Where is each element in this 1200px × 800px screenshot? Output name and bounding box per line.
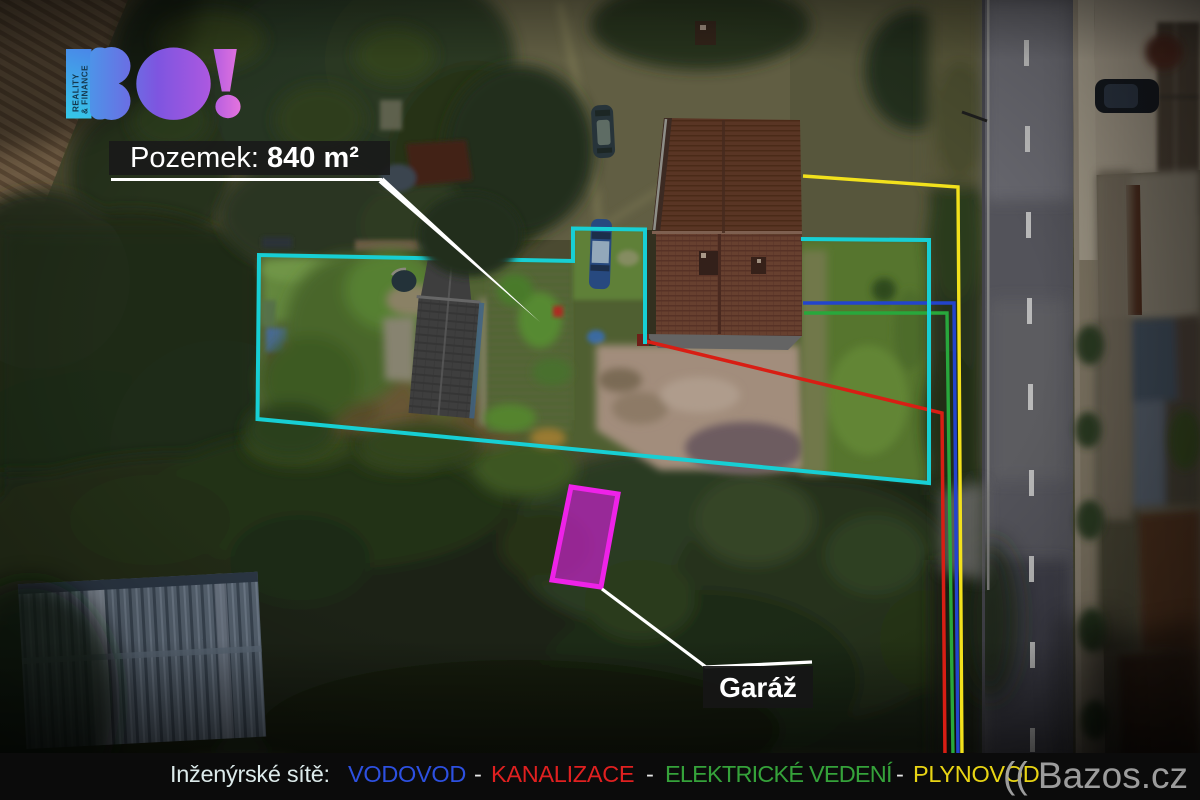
svg-text:-: - xyxy=(474,761,482,787)
svg-text:Inženýrské sítě:: Inženýrské sítě: xyxy=(170,761,330,787)
svg-text:-: - xyxy=(646,761,654,787)
svg-text:(( Bazos.cz: (( Bazos.cz xyxy=(1003,755,1188,796)
svg-text:KANALIZACE: KANALIZACE xyxy=(491,761,634,787)
svg-text:VODOVOD: VODOVOD xyxy=(348,761,466,787)
svg-text:REALITY: REALITY xyxy=(72,73,81,112)
svg-text:Garáž: Garáž xyxy=(719,672,797,703)
svg-text:ELEKTRICKÉ VEDENÍ: ELEKTRICKÉ VEDENÍ xyxy=(665,761,893,787)
svg-text:& FINANCE: & FINANCE xyxy=(81,65,90,114)
svg-text:-: - xyxy=(896,761,904,787)
svg-text:Pozemek: 840 m²: Pozemek: 840 m² xyxy=(130,142,359,174)
